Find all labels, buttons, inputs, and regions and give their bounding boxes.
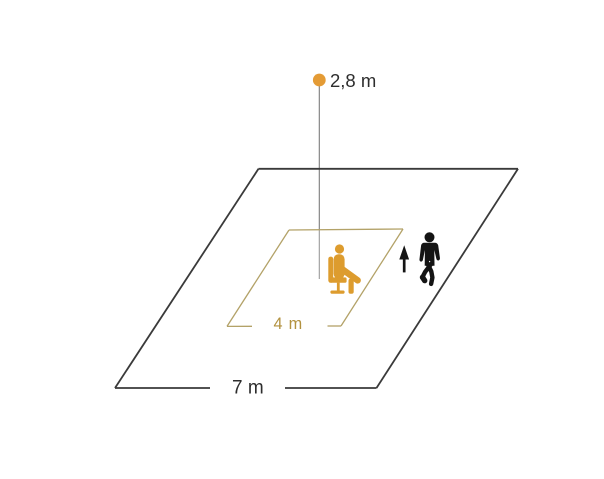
svg-text:2,8 m: 2,8 m (330, 70, 376, 91)
svg-text:7 m: 7 m (232, 378, 264, 399)
svg-text:4 m: 4 m (274, 315, 304, 333)
